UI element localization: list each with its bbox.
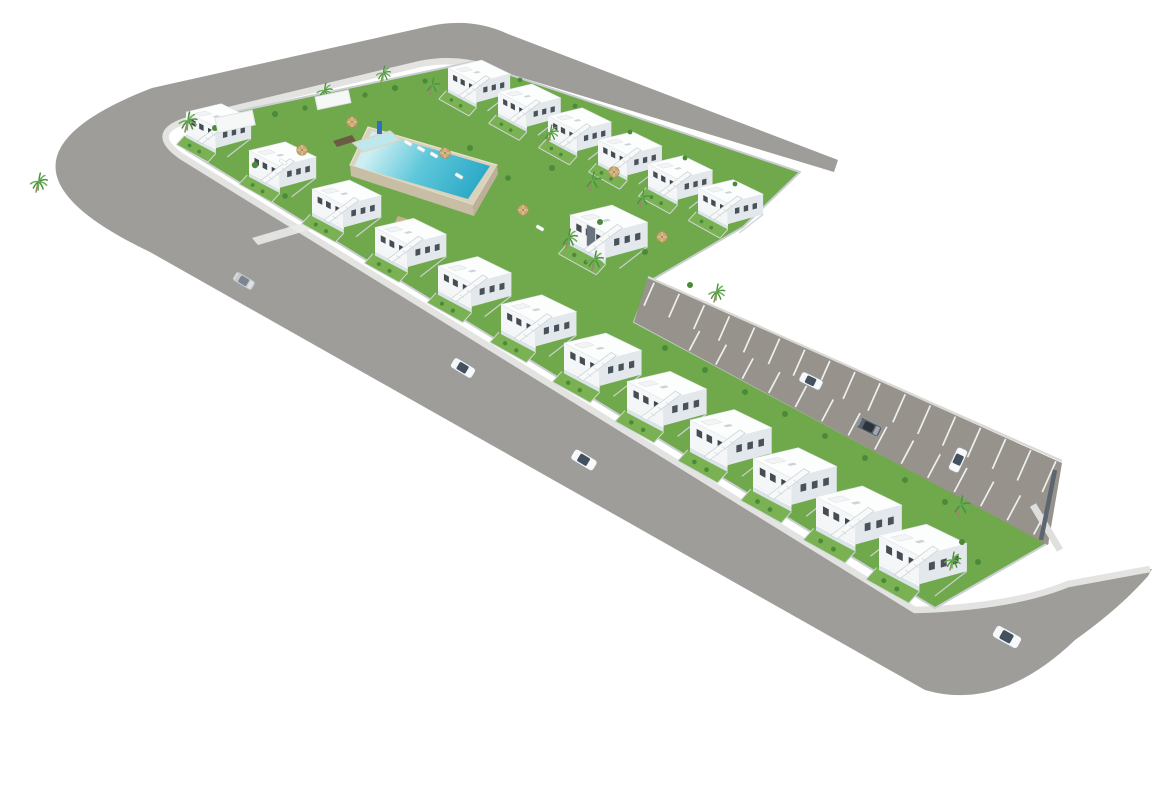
window [753,203,757,210]
window [584,135,588,142]
bush [573,104,578,109]
palm-tree [709,284,725,302]
window [564,322,569,330]
window [614,238,619,246]
window [941,558,947,567]
bush [975,559,981,565]
window [702,179,706,186]
bush [597,219,603,225]
bush [662,345,668,351]
window [305,166,310,173]
window [758,438,764,447]
window [735,207,739,214]
pool-sign [377,121,382,134]
window [593,132,597,139]
bush [467,145,473,151]
window [608,366,613,374]
window [634,159,638,166]
window [544,327,549,335]
window [490,285,495,293]
window [296,168,301,175]
parasol [518,205,528,215]
window [876,519,882,528]
window [685,183,689,190]
window [370,205,375,212]
parasol [347,117,357,127]
window [361,207,366,214]
bush [742,389,748,395]
bush [422,78,427,83]
bush [628,130,633,135]
bush [683,156,688,161]
parasol [297,145,307,155]
bush [282,193,288,199]
palm-tree [31,173,48,192]
window [812,480,818,489]
bush [959,539,965,545]
window [287,170,292,177]
window [618,363,623,371]
window [629,361,634,369]
window [865,522,871,531]
parasol [609,167,619,177]
bush [733,182,738,187]
window [801,483,807,492]
bush [642,249,648,255]
window [736,444,742,453]
window [542,108,546,115]
bush [822,433,828,439]
window [601,130,605,137]
window [480,288,485,296]
window [683,402,688,410]
window [551,106,555,113]
site-render-svg [0,0,1170,785]
parasol [440,148,450,158]
bush [862,455,868,461]
window [635,233,640,241]
window [534,110,538,117]
bush [518,78,523,83]
bush [362,92,367,97]
window [694,399,699,407]
bush [302,105,307,110]
window [351,209,356,216]
window [672,405,677,413]
bush [272,111,278,117]
window [823,477,829,486]
window [435,244,440,252]
window [929,561,935,570]
bush [687,282,693,288]
window [425,246,430,254]
bush [549,165,555,171]
window [652,154,656,161]
window [492,84,496,91]
window [500,283,505,291]
aerial-site-plan-render [0,0,1170,785]
window [693,181,697,188]
bush [702,367,708,373]
bush [782,411,788,417]
bush [392,85,398,91]
bush [942,499,948,505]
window [888,516,894,525]
bush [902,477,908,483]
window [747,441,753,450]
window [500,82,504,89]
window [415,248,420,256]
window [483,86,487,93]
window [643,157,647,164]
window [744,205,748,212]
window [625,235,630,243]
window [554,324,559,332]
window [223,131,227,138]
parasol [657,232,667,242]
bush [505,175,511,181]
bush [252,162,258,168]
